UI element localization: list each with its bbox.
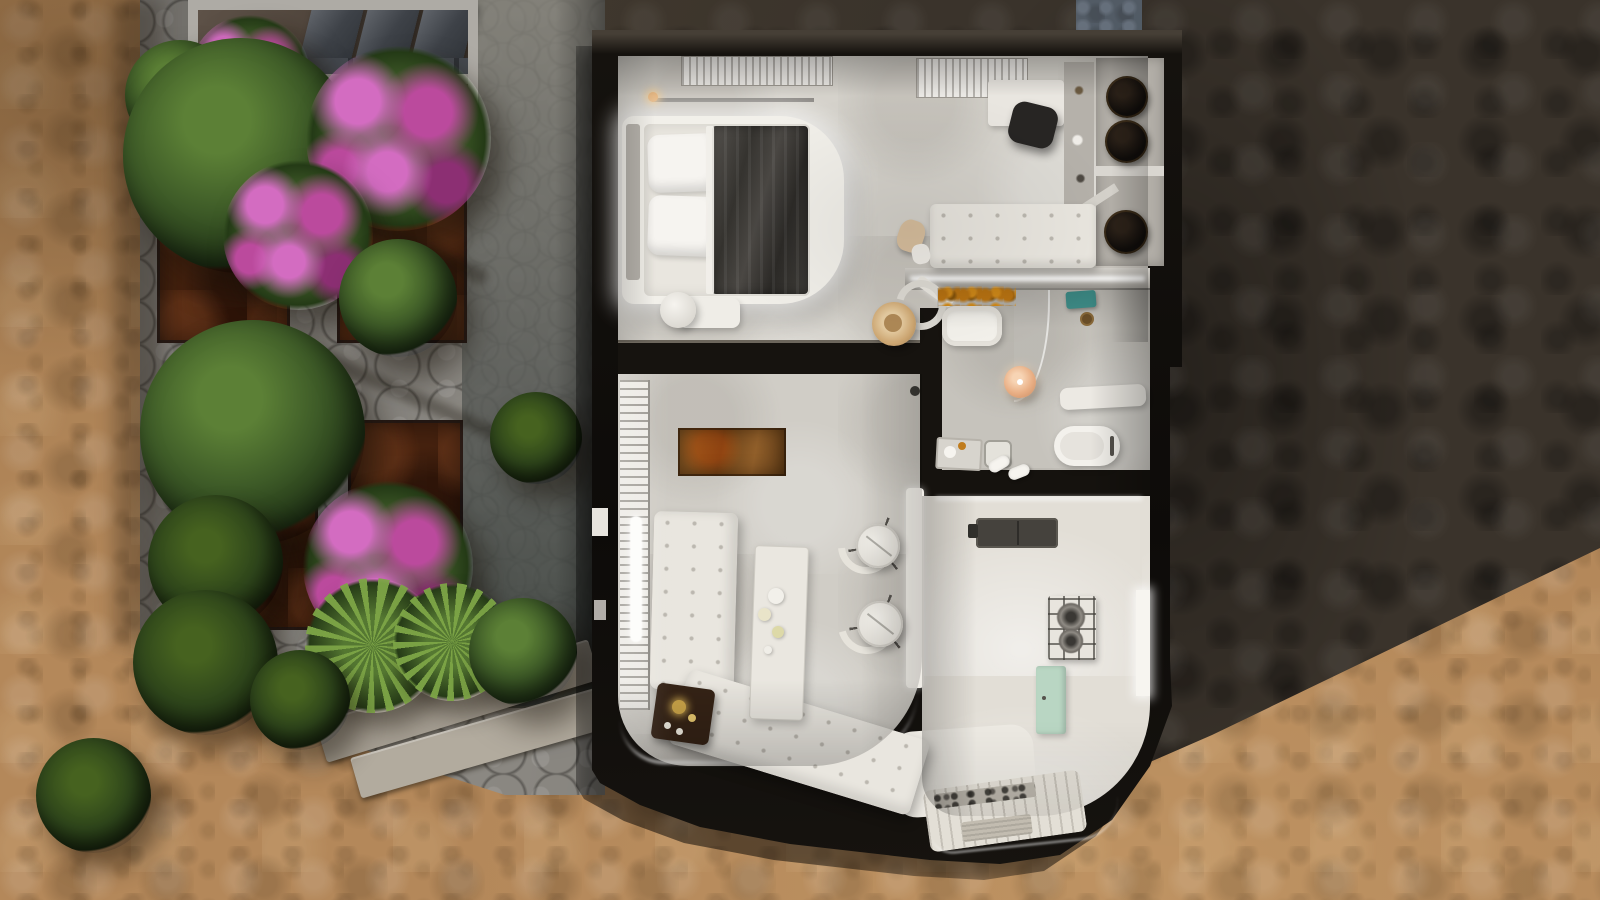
- straw-hat: [872, 302, 916, 346]
- candle: [664, 722, 671, 729]
- kitchen-sink: [976, 518, 1058, 548]
- bathroom-sink: [942, 306, 1002, 346]
- toilet: [1054, 426, 1120, 466]
- dish: [758, 608, 771, 621]
- wardrobe-basin: [1104, 210, 1148, 254]
- candle: [676, 728, 683, 735]
- window-sill: [594, 600, 606, 620]
- amber-flowers: [938, 286, 1016, 306]
- shower-bench-ledge: [1059, 384, 1146, 410]
- dish: [772, 626, 784, 638]
- mint-cabinet: [1036, 666, 1066, 734]
- small-vase: [910, 386, 920, 396]
- amber-bottle: [958, 442, 966, 450]
- window-sill: [592, 508, 608, 536]
- tufted-bench: [930, 204, 1096, 268]
- gold-decor: [688, 714, 696, 722]
- shower-drain: [1080, 312, 1094, 326]
- soap-dish: [944, 446, 956, 458]
- dish: [768, 588, 784, 604]
- teal-soap-tray: [1065, 290, 1096, 309]
- kitchen-faucet: [968, 524, 978, 538]
- cafe-table: [856, 524, 900, 568]
- floorplan-render: [0, 0, 1600, 900]
- sofa-long-section: [650, 511, 739, 691]
- cafe-table: [857, 601, 903, 647]
- pendant-sphere-lamp: [1004, 366, 1036, 398]
- burner: [1058, 628, 1084, 654]
- bronze-rug: [678, 428, 786, 476]
- curtain-bunch: [630, 516, 642, 642]
- dish: [764, 646, 772, 654]
- wardrobe-basin: [1105, 120, 1148, 163]
- wardrobe-basin: [1106, 76, 1148, 118]
- dark-side-table: [650, 682, 715, 746]
- gold-decor: [672, 700, 686, 714]
